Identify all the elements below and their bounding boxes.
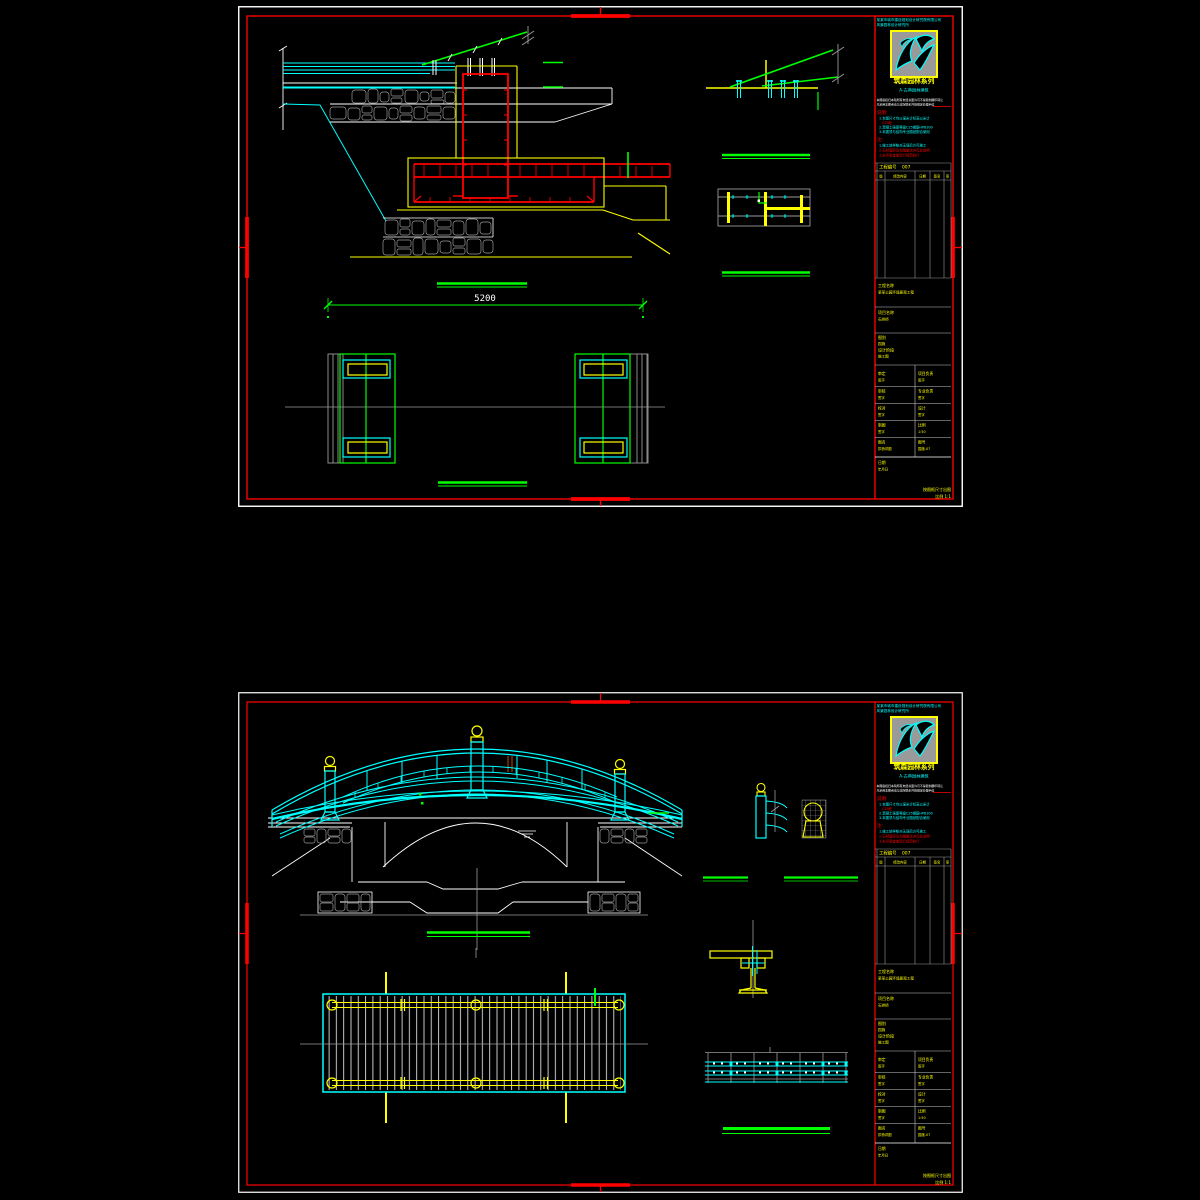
project-fields: 工程名称 某某公园环境景观工程 项目名称 石拱桥 图别 园施 设计阶段 施工图 xyxy=(875,282,951,365)
ibeam-section-detail xyxy=(710,920,772,998)
note-2: 2.混凝土强度等级C25钢筋HPB300 xyxy=(879,125,933,130)
stone-hatch-upper xyxy=(330,89,455,121)
company-line2: 风景园林设计研究所 xyxy=(877,22,910,27)
approach-stone-hatch xyxy=(304,829,647,843)
copyright-line2: 凡采用本图者请与本院联系并按规定办理手续 xyxy=(877,102,935,107)
revision-table: 工程编号 007 版 修改内容 日期 签名 审 xyxy=(875,163,951,278)
series-title: 筑森园林系列 xyxy=(894,76,935,85)
approval-cell: 图名 xyxy=(878,440,886,445)
rebar-footing xyxy=(414,164,670,202)
approval-cell: 签字 xyxy=(878,395,885,400)
table-header-3: 签名 xyxy=(934,174,941,179)
approval-cell: 审核 xyxy=(878,389,886,394)
field-label: 项目名称 xyxy=(878,309,894,315)
approval-cell: 签字 xyxy=(918,412,925,417)
railing-strip-detail xyxy=(705,1047,848,1134)
plot-note-line1: 按图框尺寸出图 xyxy=(923,486,951,492)
railing-connection-detail xyxy=(706,44,844,110)
footing-plan-view xyxy=(285,354,665,463)
approval-cell: 校对 xyxy=(878,406,886,411)
table-header-1: 修改内容 xyxy=(893,174,907,179)
abutment-section-view xyxy=(279,26,670,257)
table-header-2: 日期 xyxy=(919,174,926,179)
table-title: 工程编号 xyxy=(879,164,897,171)
field-value: 园施 xyxy=(878,341,886,346)
notes2-line3: 3.未尽事宜按现行规范执行 xyxy=(879,153,920,158)
notes2-title: 注: xyxy=(877,136,883,143)
field-label: 工程名称 xyxy=(878,282,894,288)
finial-mesh-detail xyxy=(802,800,826,838)
approval-cell: 园施-07 xyxy=(918,446,930,451)
field-value: 某某公园环境景观工程 xyxy=(878,290,914,295)
voussoir-ticks xyxy=(355,766,605,798)
notes2-line2: 2.石材面层及勾缝做法详见总说明 xyxy=(879,148,930,153)
approval-cell: 设计 xyxy=(918,406,926,411)
approval-cell: 制图 xyxy=(878,423,886,428)
field-value: 石拱桥 xyxy=(878,317,889,322)
approval-cell: 签字 xyxy=(878,412,885,417)
approval-cell: 签字 xyxy=(878,378,885,383)
company-line1: 某某市城市建设规划设计研究院有限公司 xyxy=(877,17,942,22)
table-header-4: 审 xyxy=(946,174,950,179)
sheet1-abutment-footing-drawing: 5200 xyxy=(239,7,963,507)
rebar-column xyxy=(453,74,518,198)
field-label: 图别 xyxy=(878,334,886,340)
cad-canvas: 5200 xyxy=(0,0,1200,1200)
field-label: 设计阶段 xyxy=(878,347,894,353)
post-finial-detail xyxy=(756,784,787,839)
note-1b: C25砼 xyxy=(882,120,893,125)
foundation-stone-blocks xyxy=(318,892,640,913)
title-block: 某某市城市建设规划设计研究院有限公司 风景园林设计研究所 筑森园林系列 A-古典… xyxy=(875,17,951,499)
finial-post-center xyxy=(467,726,487,798)
series-subtitle: A-古典园林建筑 xyxy=(899,87,929,94)
dimension-5200: 5200 xyxy=(324,294,647,318)
notes2-line1: 1.施工放样核对无误后方可施工 xyxy=(879,143,927,148)
plot-note-line2: 比例 1:1 xyxy=(935,493,951,499)
approval-cell: 专业负责 xyxy=(918,389,933,394)
note-1: 1.本图尺寸均以毫米计标高以米计 xyxy=(879,116,930,121)
title-block-sheet2 xyxy=(875,703,951,1185)
sheet2-frame xyxy=(239,693,963,1193)
beam-plan-detail xyxy=(718,189,810,226)
notes-title: 说明: xyxy=(877,109,888,116)
table-no: 007 xyxy=(902,165,911,171)
approval-cell: 比例 xyxy=(918,423,926,428)
view-title-underlines-sheet1 xyxy=(437,155,810,486)
approval-cell: 签字 xyxy=(918,395,925,400)
approval-cell: 项目负责 xyxy=(918,371,933,376)
field-value: 年月日 xyxy=(878,467,888,472)
detail-underlines-upper xyxy=(703,878,858,882)
field-value: 施工图 xyxy=(878,354,889,359)
sheet2-arch-bridge-drawing xyxy=(239,693,963,1193)
approval-cell: 拱桥详图 xyxy=(878,446,892,451)
approval-cell: 审定 xyxy=(878,371,886,376)
stone-hatch-lower xyxy=(383,218,493,255)
approval-cell: 签字 xyxy=(878,429,885,434)
approval-cell: 签字 xyxy=(918,378,925,383)
bridge-elevation-view xyxy=(268,726,682,950)
approval-cell: 1:50 xyxy=(918,430,926,434)
finial-post-left xyxy=(321,757,339,821)
approval-rows: 审定 签字 项目负责 签字 审核 签字 专业负责 签字 校对 签字 设计 签字 … xyxy=(875,365,951,472)
note-3: 3.本图须与结构专业图纸配合使用 xyxy=(879,129,930,134)
bridge-plan-view xyxy=(300,948,648,1123)
copyright-line1: 本图版权归本院所有未经书面许可不得复制翻印转让 xyxy=(877,97,944,102)
footing-plan-right xyxy=(575,354,648,463)
footing-plan-left xyxy=(328,354,395,463)
approval-cell: 图号 xyxy=(918,440,926,445)
field-label: 日期 xyxy=(878,460,886,465)
logo-icon xyxy=(891,31,937,77)
table-header-0: 版 xyxy=(879,174,883,179)
dimension-text: 5200 xyxy=(474,294,496,304)
